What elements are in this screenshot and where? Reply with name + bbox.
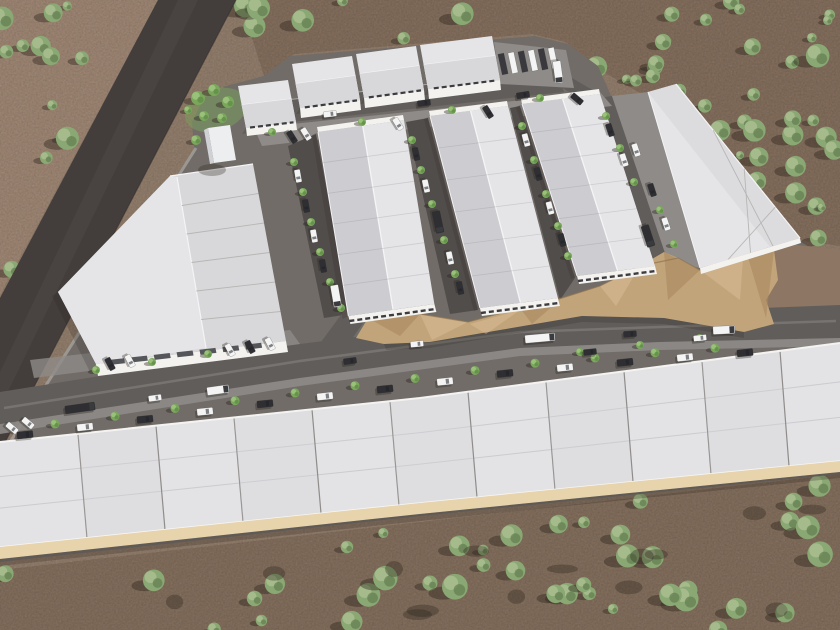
car [735, 348, 754, 359]
car [435, 377, 454, 388]
car [15, 430, 34, 441]
car [555, 363, 574, 374]
car [615, 358, 634, 369]
aerial-render: Aerial 3D architectural rendering of an … [0, 0, 840, 630]
car [255, 399, 274, 410]
car [135, 415, 154, 426]
car [495, 369, 514, 380]
car [315, 392, 334, 403]
flex-building-4 [420, 36, 501, 99]
car [195, 407, 214, 418]
car [621, 331, 637, 340]
industrial-park-scene [0, 0, 840, 630]
flex-building-3 [356, 46, 425, 108]
tree [0, 45, 13, 59]
flex-building-2 [292, 56, 361, 118]
flex-building-1 [238, 80, 297, 136]
truck [711, 325, 735, 336]
car [75, 423, 94, 434]
car [375, 385, 394, 396]
car [675, 353, 694, 364]
